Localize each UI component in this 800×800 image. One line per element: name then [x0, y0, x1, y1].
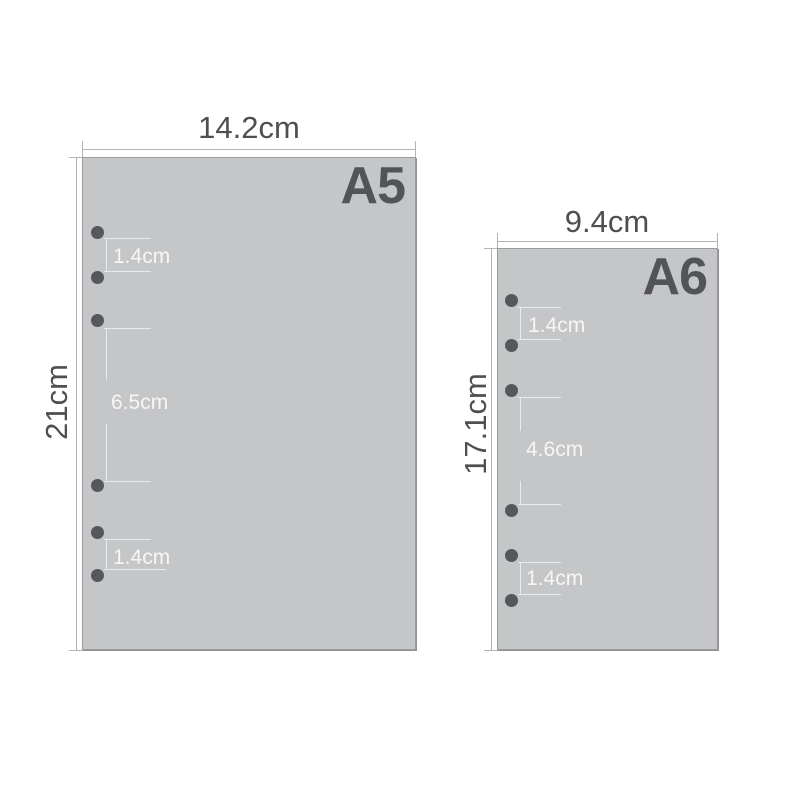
a6-width-label: 9.4cm — [507, 204, 707, 240]
bracket-line — [518, 397, 561, 398]
bracket-line — [104, 328, 151, 329]
paper-size-diagram: 14.2cm 21cm A5 1.4cm 6.5cm 1.4cm 9.4cm — [0, 0, 800, 800]
a5-width-dimension-tick-right — [415, 141, 416, 157]
bracket-line — [518, 562, 561, 563]
bracket-line — [104, 238, 151, 239]
binder-hole — [91, 314, 104, 327]
bracket-line — [104, 481, 151, 482]
bracket-line — [104, 271, 151, 272]
binder-hole — [91, 271, 104, 284]
a6-height-dimension-line — [491, 248, 492, 650]
bracket-line — [104, 569, 166, 570]
a5-spacing-bottom-label: 1.4cm — [113, 547, 170, 568]
bracket-line — [520, 562, 521, 594]
a6-spacing-bottom-label: 1.4cm — [526, 568, 583, 589]
a5-height-dimension-tick-top — [69, 157, 83, 158]
bracket-line — [518, 307, 561, 308]
a6-height-dimension-tick-bottom — [484, 650, 498, 651]
a6-sheet: A6 1.4cm 4.6cm 1.4cm — [497, 248, 718, 650]
bracket-line — [106, 328, 107, 380]
a6-sheet-label: A6 — [643, 251, 707, 303]
binder-hole — [505, 339, 518, 352]
bracket-line — [518, 594, 561, 595]
bracket-line — [106, 424, 107, 481]
bracket-line — [520, 397, 521, 431]
bracket-line — [518, 339, 561, 340]
a5-spacing-middle-label: 6.5cm — [111, 392, 168, 413]
binder-hole — [505, 504, 518, 517]
a5-spacing-top-label: 1.4cm — [113, 246, 170, 267]
binder-hole — [505, 384, 518, 397]
a6-height-dimension-tick-top — [484, 248, 498, 249]
bracket-line — [520, 307, 521, 339]
binder-hole — [91, 479, 104, 492]
binder-hole — [91, 526, 104, 539]
binder-hole — [505, 594, 518, 607]
a5-width-dimension-line — [82, 149, 416, 150]
a5-sheet-label: A5 — [341, 160, 405, 212]
bracket-line — [520, 481, 521, 505]
bracket-line — [104, 539, 151, 540]
binder-hole — [91, 226, 104, 239]
binder-hole — [505, 294, 518, 307]
a5-width-dimension-tick-left — [82, 141, 83, 157]
a6-width-dimension-tick-left — [497, 233, 498, 249]
a6-width-dimension-line — [497, 241, 718, 242]
bracket-line — [106, 539, 107, 569]
binder-hole — [91, 569, 104, 582]
bracket-line — [518, 504, 561, 505]
a6-height-label: 17.1cm — [458, 364, 494, 484]
a6-width-dimension-tick-right — [717, 233, 718, 249]
binder-hole — [505, 549, 518, 562]
a5-sheet: A5 1.4cm 6.5cm 1.4cm — [82, 157, 416, 650]
a5-height-dimension-line — [76, 157, 77, 650]
a6-spacing-middle-label: 4.6cm — [526, 439, 583, 460]
a5-width-label: 14.2cm — [149, 110, 349, 146]
bracket-line — [106, 238, 107, 271]
a6-spacing-top-label: 1.4cm — [528, 315, 585, 336]
a5-height-label: 21cm — [39, 342, 75, 462]
a5-height-dimension-tick-bottom — [69, 650, 83, 651]
